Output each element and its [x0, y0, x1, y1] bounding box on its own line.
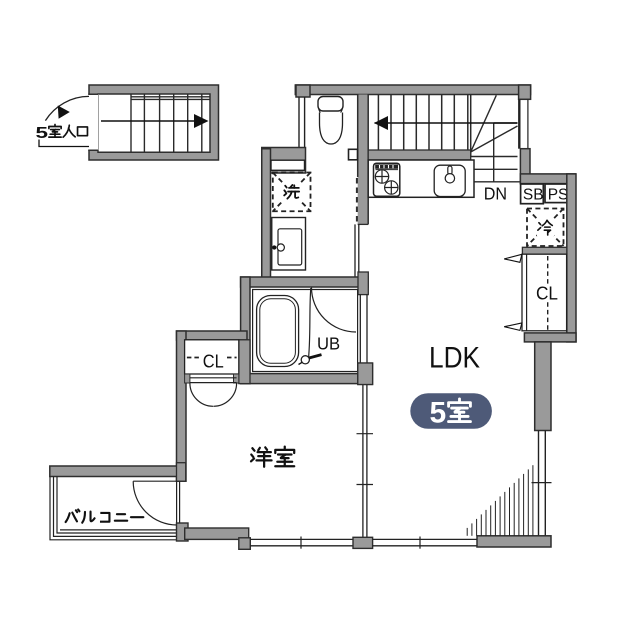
svg-text:CL: CL — [203, 352, 224, 372]
svg-text:PS: PS — [548, 187, 569, 204]
svg-text:5: 5 — [36, 125, 49, 142]
svg-text:LDK: LDK — [429, 342, 480, 375]
svg-text:UB: UB — [317, 334, 340, 354]
svg-text:DN: DN — [484, 184, 507, 204]
svg-text:CL: CL — [536, 283, 558, 303]
svg-text:5: 5 — [430, 397, 447, 430]
svg-text:SB: SB — [523, 187, 544, 204]
